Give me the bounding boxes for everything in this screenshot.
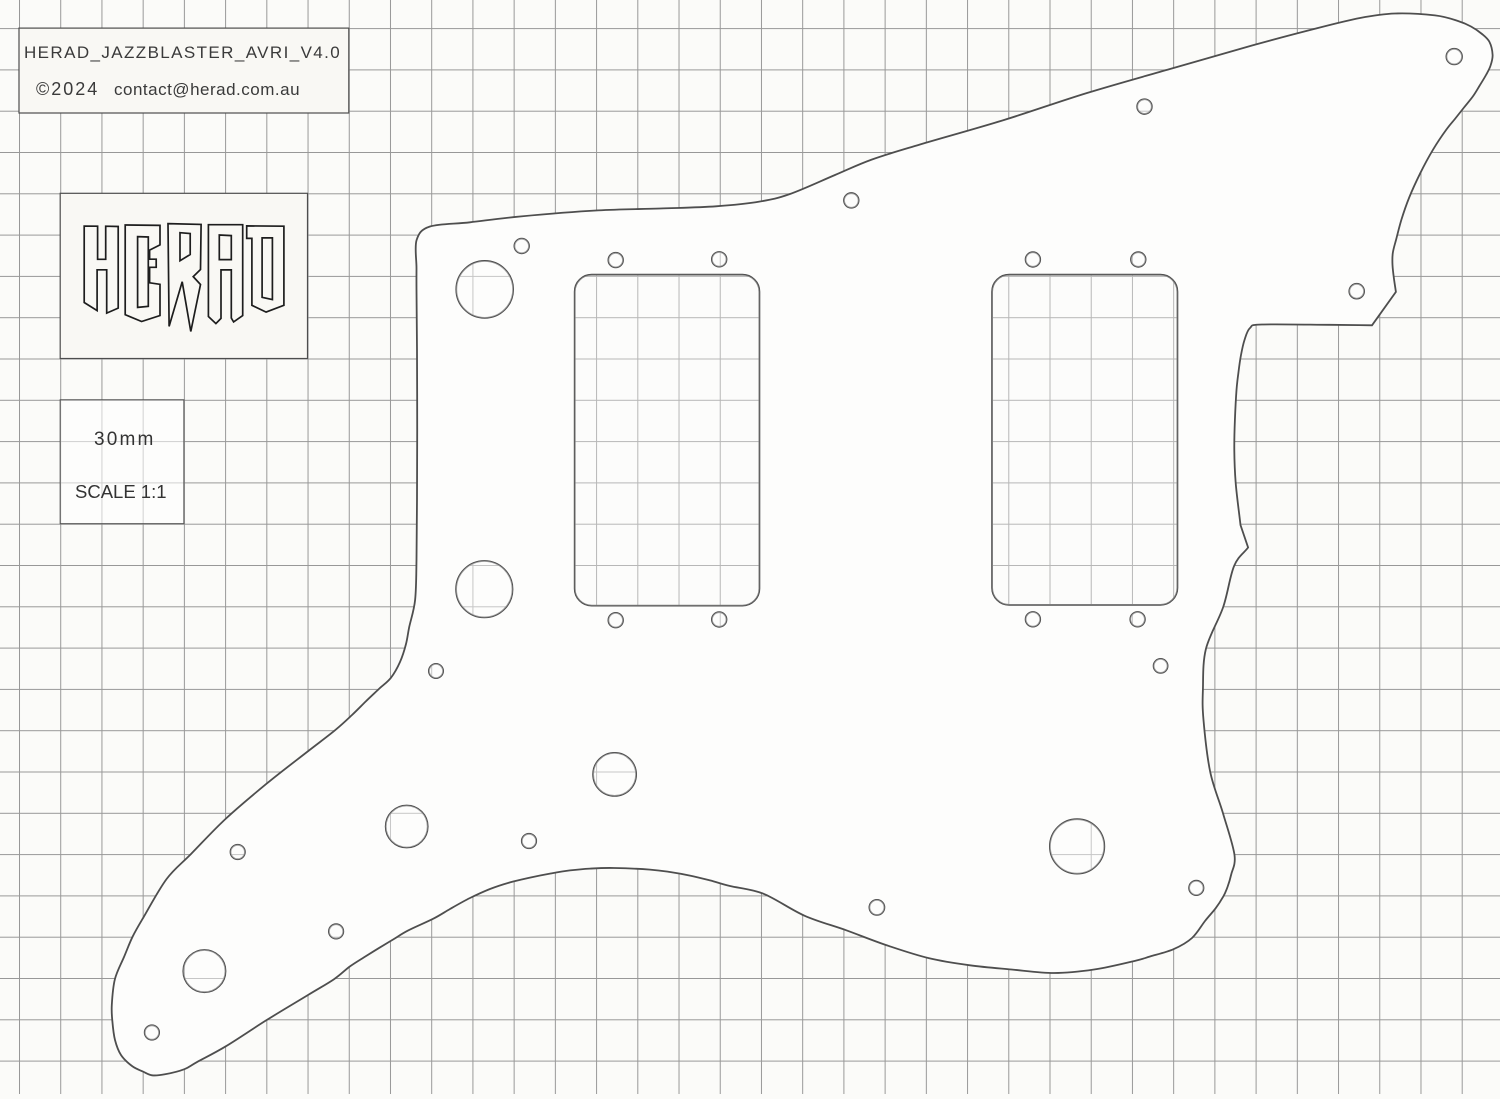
svg-text:contact@herad.com.au: contact@herad.com.au: [114, 80, 300, 99]
svg-text:HERAD_JAZZBLASTER_AVRI_V4.0: HERAD_JAZZBLASTER_AVRI_V4.0: [24, 43, 341, 62]
svg-text:30mm: 30mm: [94, 429, 156, 450]
svg-text:SCALE 1:1: SCALE 1:1: [75, 481, 167, 502]
svg-text:©2024: ©2024: [36, 79, 99, 99]
